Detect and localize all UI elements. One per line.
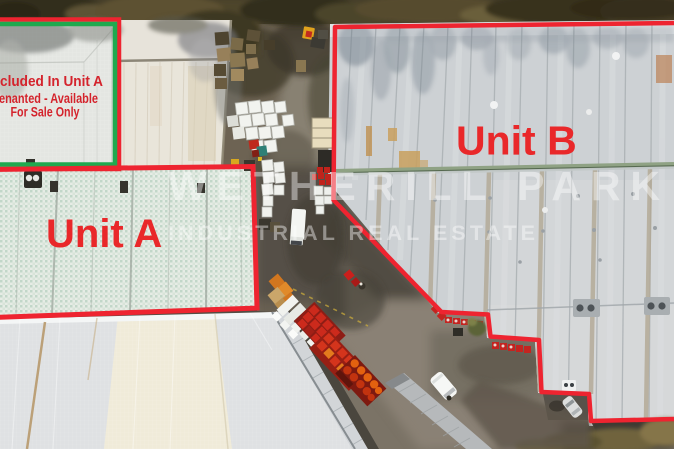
svg-text:For Sale Only: For Sale Only (11, 105, 80, 120)
svg-text:cluded In Unit A: cluded In Unit A (0, 73, 103, 90)
svg-text:Unit A: Unit A (46, 212, 162, 256)
svg-text:Unit B: Unit B (456, 118, 577, 164)
svg-text:INDUSTRIAL REAL ESTATE: INDUSTRIAL REAL ESTATE (168, 221, 535, 245)
